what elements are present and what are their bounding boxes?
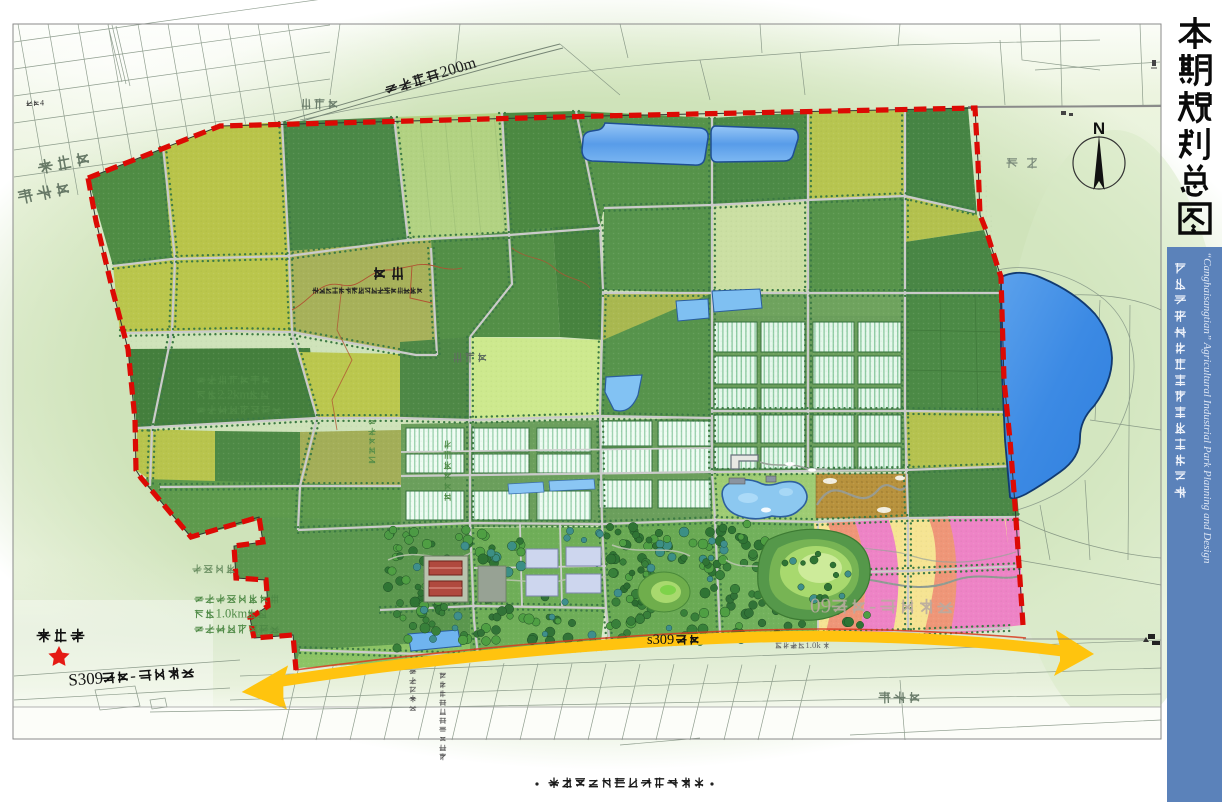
svg-text:4: 4 [40, 99, 44, 108]
svg-text:09: 09 [810, 594, 831, 618]
svg-text:2.2km: 2.2km [218, 388, 250, 402]
svg-text:“Canghaisangtian” Agricultural: “Canghaisangtian” Agricultural Industria… [1201, 252, 1213, 564]
svg-text:S309: S309 [68, 668, 104, 689]
svg-text:-: - [869, 594, 876, 618]
svg-text:1.0k: 1.0k [805, 640, 821, 650]
svg-text:N: N [1093, 119, 1105, 138]
svg-text:s309: s309 [647, 632, 674, 648]
svg-text:1.0km: 1.0km [216, 607, 248, 621]
